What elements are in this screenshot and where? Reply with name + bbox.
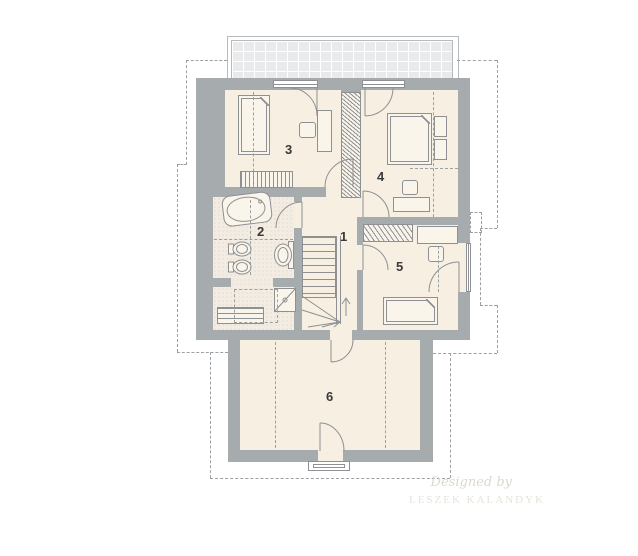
roof-chimney-dash — [470, 212, 482, 233]
exterior-step-tread — [313, 464, 345, 468]
ceiling-line-dash — [214, 239, 293, 240]
bathroom-alcove-opening — [231, 278, 273, 287]
ceiling-line-dash — [433, 92, 434, 217]
roof-outline-dash — [450, 353, 451, 478]
ceiling-line-dash — [275, 342, 276, 448]
roof-outline-dash — [177, 352, 228, 353]
nightstand-room4-bottom — [434, 139, 447, 160]
staircase-winders — [300, 294, 360, 328]
watermark-designed-by: Designed by — [360, 475, 512, 490]
hall-floor — [341, 197, 357, 217]
room-label-3: 3 — [285, 142, 292, 157]
bed-room3-mattress — [241, 98, 267, 152]
room-label-6: 6 — [326, 389, 333, 404]
door-arc-room4 — [363, 191, 389, 217]
chair-room5 — [428, 246, 444, 262]
ceiling-line-dash — [253, 92, 254, 187]
chair-room4 — [402, 180, 418, 195]
roof-outline-dash — [210, 352, 211, 478]
roof-outline-dash — [497, 60, 498, 228]
door-arc-room3 — [325, 159, 353, 187]
roof-outline-dash — [480, 228, 497, 229]
desk-room4 — [393, 197, 430, 212]
roof-outline-dash — [457, 60, 497, 61]
bathtub — [222, 191, 274, 227]
nightstand-room4-top — [434, 116, 447, 137]
door-arc-room6-top — [331, 340, 353, 362]
ceiling-line-dash — [250, 200, 251, 275]
room-label-4: 4 — [377, 169, 384, 184]
bed-room3-pillow-fold — [260, 97, 269, 106]
door-arc-room6-bottom — [320, 423, 344, 451]
desk-room3 — [317, 110, 332, 152]
roof-outline-dash — [433, 353, 497, 354]
terrace-tiles — [231, 40, 453, 80]
floor-plan: 1 2 3 4 5 6 Designed by LESZEK KALANDYK — [0, 0, 638, 556]
room-6-doorway — [330, 328, 352, 340]
desk-room5 — [417, 226, 458, 244]
room-label-2: 2 — [257, 224, 264, 239]
roof-outline-dash — [497, 305, 498, 353]
ceiling-line-dash — [234, 289, 278, 323]
room-label-1: 1 — [340, 229, 347, 244]
roof-outline-dash — [186, 60, 227, 61]
door-arc-balcony — [429, 262, 459, 292]
ceiling-line-dash — [385, 342, 386, 448]
balcony-window — [466, 243, 471, 292]
roof-outline-dash — [177, 164, 178, 352]
chair-room3 — [299, 122, 316, 138]
door-arc-terrace-room3 — [290, 88, 317, 116]
ceiling-line-dash — [438, 246, 439, 292]
terrace-window-left — [273, 80, 318, 88]
roof-outline-dash — [480, 305, 497, 306]
bed-room5-pillow-fold — [426, 299, 435, 308]
room-label-5: 5 — [396, 259, 403, 274]
washbasin — [274, 241, 294, 269]
watermark-author: LESZEK KALANDYK — [360, 494, 545, 506]
wardrobe-room3 — [240, 171, 293, 188]
roof-outline-dash — [177, 164, 187, 165]
roof-outline-dash — [480, 228, 481, 305]
terrace-window-right — [362, 80, 405, 88]
door-arc-bathroom — [276, 202, 302, 228]
bed-room4-pillow-fold — [421, 115, 430, 124]
door-arc-room5 — [363, 245, 388, 270]
staircase-flight — [302, 236, 336, 298]
wardrobe-room5 — [363, 224, 413, 242]
ceiling-line-dash — [410, 168, 458, 169]
door-arc-terrace-room4 — [365, 88, 393, 116]
roof-outline-dash — [186, 60, 187, 165]
